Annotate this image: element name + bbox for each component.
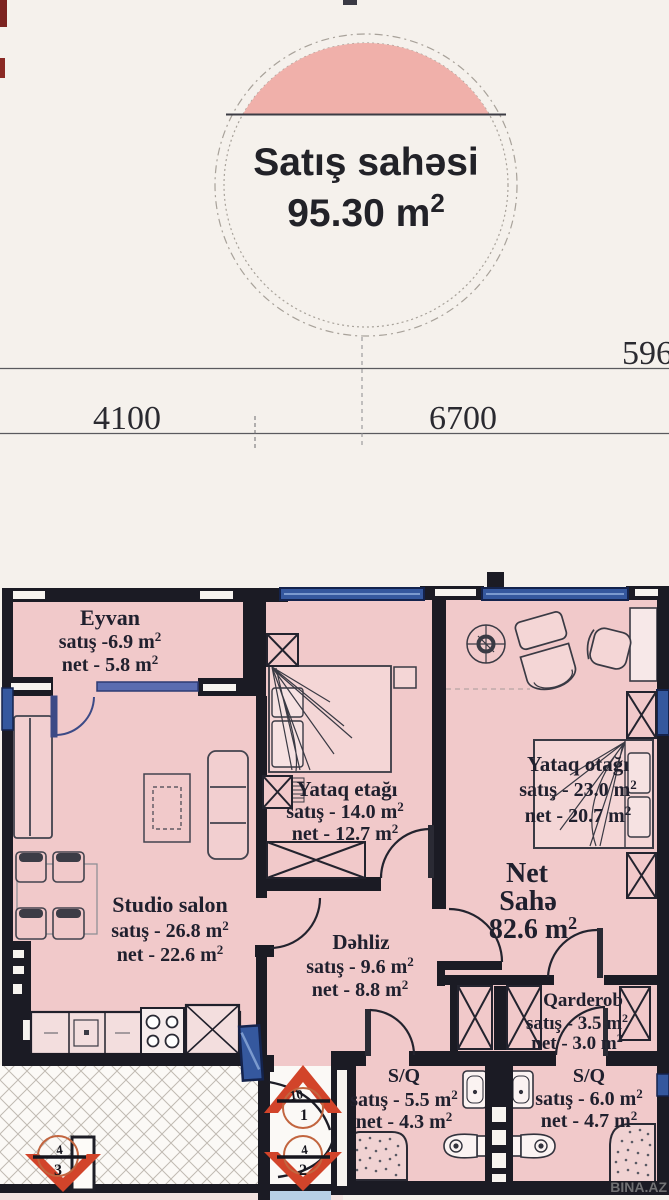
svg-text:6700: 6700: [429, 400, 497, 437]
svg-text:82.6 m2: 82.6 m2: [489, 913, 577, 945]
svg-text:4100: 4100: [93, 400, 161, 437]
svg-text:Eyvan: Eyvan: [80, 605, 140, 630]
svg-text:net - 5.8 m2: net - 5.8 m2: [62, 652, 158, 676]
svg-text:satış - 6.0 m2: satış - 6.0 m2: [535, 1086, 643, 1110]
svg-text:Dəhliz: Dəhliz: [332, 930, 389, 954]
svg-text:Satış sahəsi: Satış sahəsi: [253, 141, 478, 184]
svg-text:satış -6.9 m2: satış -6.9 m2: [59, 629, 162, 653]
svg-text:3: 3: [54, 1162, 62, 1179]
svg-text:net - 4.3 m2: net - 4.3 m2: [356, 1109, 452, 1133]
svg-text:2: 2: [299, 1162, 307, 1179]
svg-text:Qarderob: Qarderob: [543, 990, 623, 1011]
svg-text:5960: 5960: [622, 335, 669, 372]
svg-text:net - 8.8 m2: net - 8.8 m2: [312, 977, 408, 1001]
svg-text:satış - 3.5 m2: satış - 3.5 m2: [526, 1011, 628, 1034]
svg-text:net - 3.0 m2: net - 3.0 m2: [531, 1031, 622, 1054]
svg-text:10: 10: [289, 1086, 304, 1103]
svg-text:S/Q: S/Q: [573, 1065, 605, 1087]
svg-text:BINA.AZ: BINA.AZ: [610, 1179, 667, 1195]
svg-text:satış - 5.5 m2: satış - 5.5 m2: [350, 1087, 458, 1111]
svg-text:Net: Net: [506, 858, 549, 889]
svg-text:satış - 23.0 m2: satış - 23.0 m2: [519, 777, 637, 801]
svg-text:net - 12.7 m2: net - 12.7 m2: [292, 821, 398, 845]
svg-text:95.30 m2: 95.30 m2: [287, 188, 445, 235]
svg-text:Yataq etağı: Yataq etağı: [297, 777, 398, 801]
svg-text:1: 1: [300, 1107, 308, 1124]
svg-text:satış - 9.6 m2: satış - 9.6 m2: [306, 954, 414, 978]
svg-text:net - 20.7 m2: net - 20.7 m2: [525, 803, 631, 827]
svg-text:Studio salon: Studio salon: [112, 892, 228, 917]
svg-text:S/Q: S/Q: [388, 1065, 420, 1087]
svg-text:net - 4.7 m2: net - 4.7 m2: [541, 1108, 637, 1132]
svg-text:net - 22.6 m2: net - 22.6 m2: [117, 942, 223, 966]
svg-text:Sahə: Sahə: [499, 886, 557, 917]
svg-text:satış - 26.8 m2: satış - 26.8 m2: [111, 918, 229, 942]
svg-text:satış - 14.0 m2: satış - 14.0 m2: [286, 799, 404, 823]
svg-text:Yataq otağı: Yataq otağı: [527, 752, 629, 776]
